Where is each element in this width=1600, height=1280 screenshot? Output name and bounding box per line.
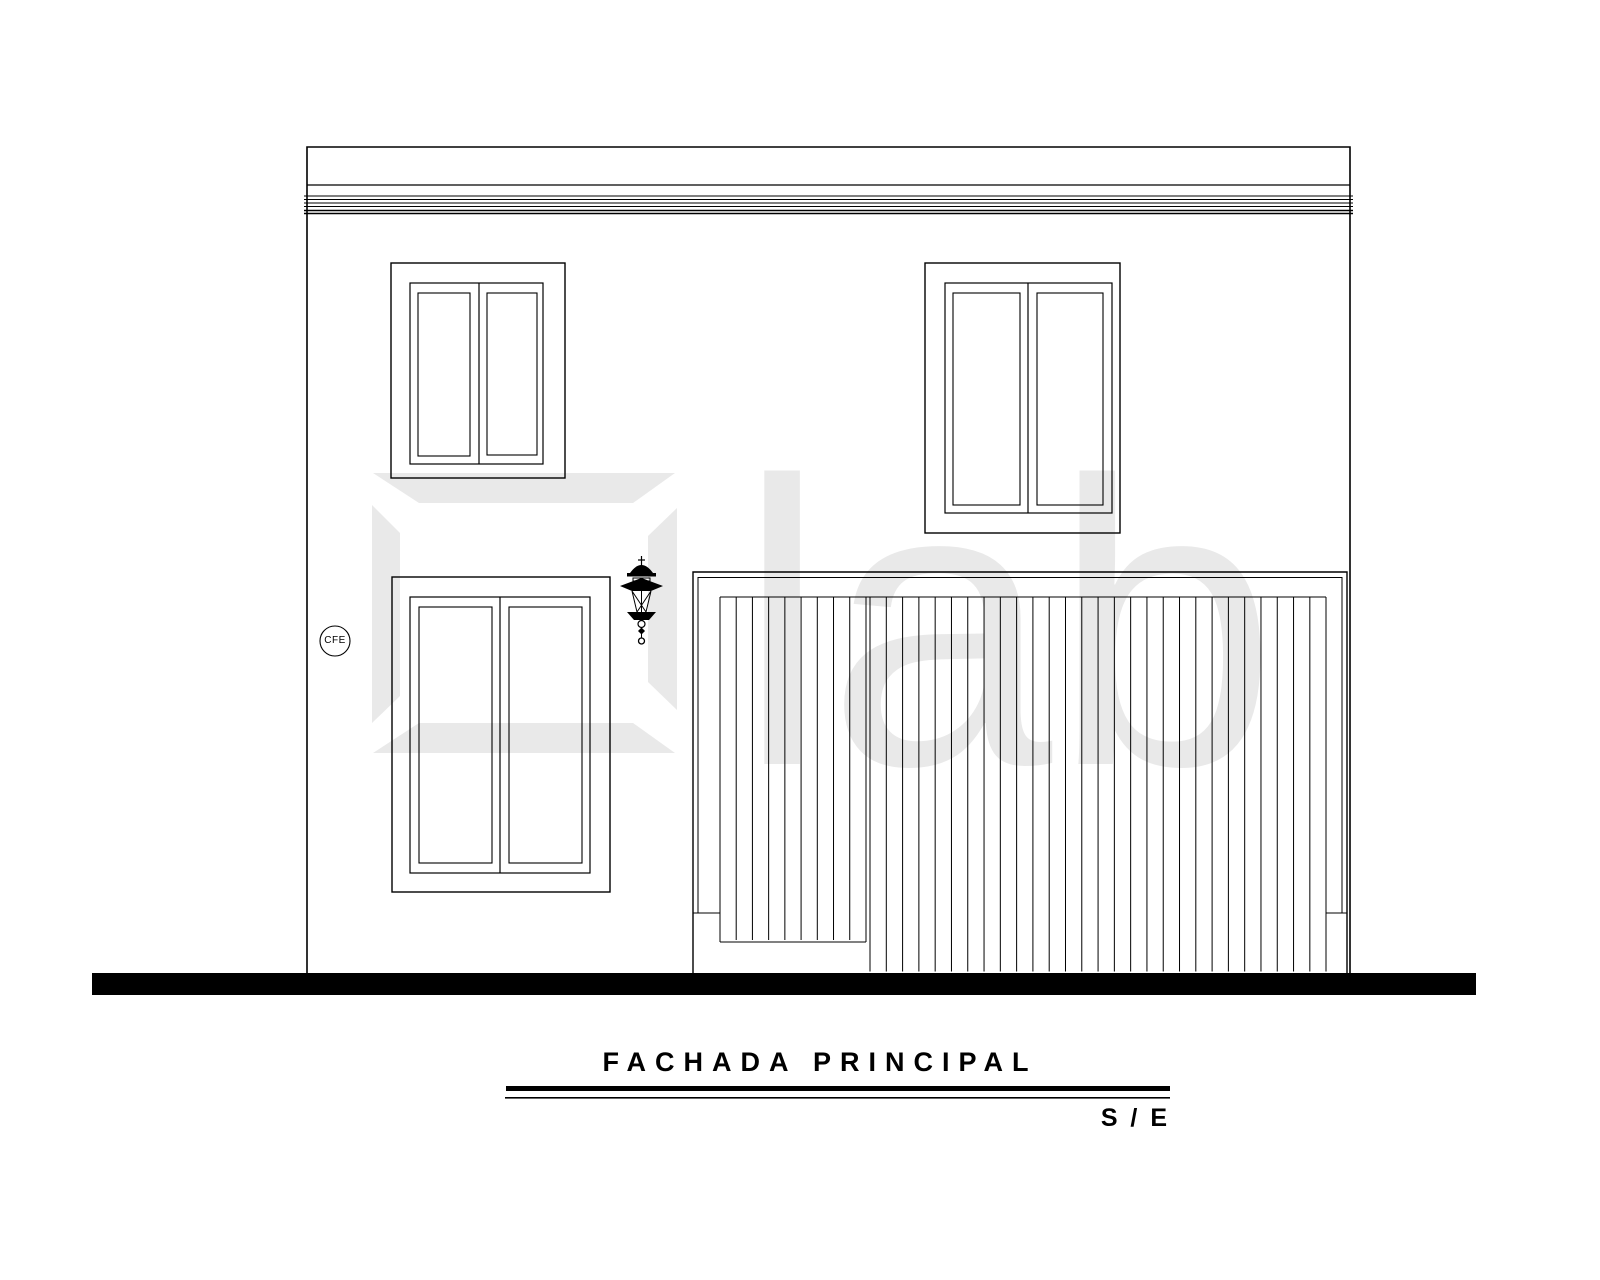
- title-underline: [505, 1086, 1170, 1099]
- ground-line: [92, 973, 1476, 995]
- building-outline: [307, 147, 1350, 973]
- garage-door-slats: [736, 597, 1310, 972]
- drawing-title: FACHADA PRINCIPAL: [500, 1047, 1140, 1078]
- garage-door: [693, 572, 1347, 973]
- facade-drawing: [0, 0, 1600, 1280]
- drawing-sheet: lab: [0, 0, 1600, 1280]
- cornice-lines: [304, 196, 1353, 214]
- drawing-scale: S / E: [950, 1104, 1170, 1133]
- window-upper-left: [391, 263, 565, 478]
- cfe-meter-label: CFE: [316, 635, 354, 646]
- window-upper-right: [925, 263, 1120, 533]
